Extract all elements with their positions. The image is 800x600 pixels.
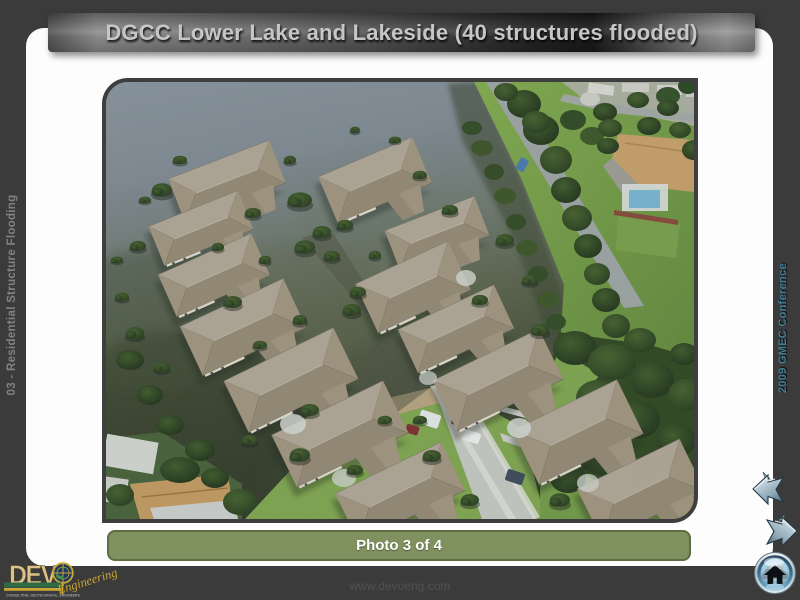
svg-text:CONSULTING, GEOTECHNICAL, ENGI: CONSULTING, GEOTECHNICAL, ENGINEERS bbox=[6, 594, 81, 598]
